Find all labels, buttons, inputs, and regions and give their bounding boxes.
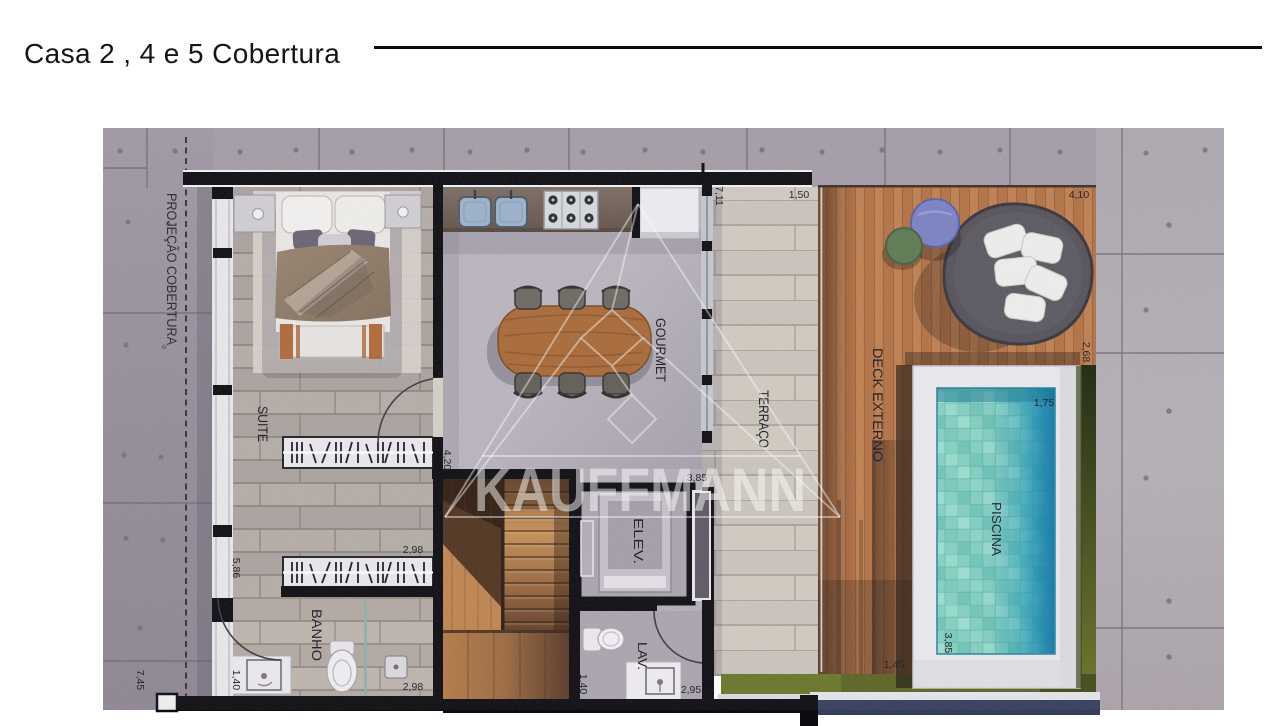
svg-text:Casa 2 , 4 e 5 Cobertura: Casa 2 , 4 e 5 Cobertura	[24, 38, 340, 69]
